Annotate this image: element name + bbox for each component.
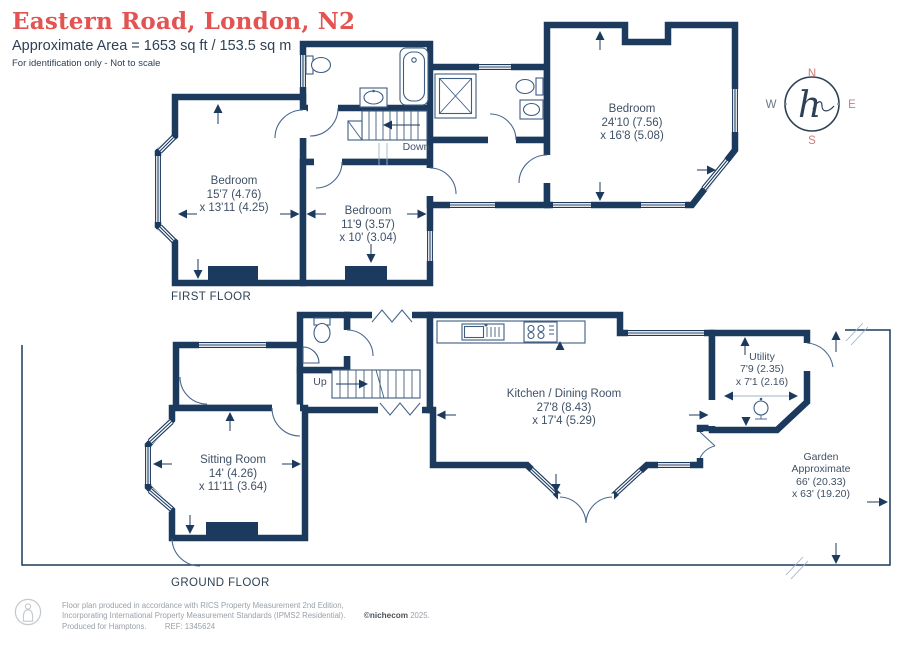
- toilet-icon: [306, 56, 331, 74]
- room-hall-ff: [430, 140, 547, 205]
- room-porch: [176, 345, 300, 408]
- ground-floor-label: GROUND FLOOR: [171, 577, 270, 589]
- ground-floor-plan: [146, 310, 833, 566]
- first-floor-label: FIRST FLOOR: [171, 291, 251, 303]
- stairs-down-label: Down: [403, 141, 430, 153]
- chimney-breast: [208, 266, 258, 283]
- room-label-sitting-room: Sitting Room 14' (4.26) x 11'11 (3.64): [199, 454, 267, 495]
- toilet-icon: [516, 78, 543, 95]
- window: [641, 203, 685, 208]
- reference-number: REF: 1345624: [165, 622, 215, 631]
- chimney-breast: [206, 522, 258, 538]
- page-title: Eastern Road, London, N2: [12, 8, 355, 35]
- compass-north: N: [808, 68, 816, 80]
- kitchen-counter: [437, 321, 585, 343]
- toilet-icon: [314, 318, 330, 343]
- first-floor-plan: [156, 25, 738, 283]
- compass-tick: [785, 103, 787, 105]
- french-doors: [558, 494, 614, 524]
- room-label-bedroom-mid: Bedroom 11'9 (3.57) x 10' (3.04): [339, 205, 396, 246]
- footer-line-2: Incorporating International Property Mea…: [62, 611, 430, 622]
- stairs-up-label: Up: [313, 376, 326, 388]
- compass: N S W E h: [766, 68, 857, 147]
- floorplan-page: N S W E h Eastern Road, London, N2 Appro…: [0, 0, 912, 645]
- hamptons-monogram: h: [798, 85, 821, 126]
- stairs: [332, 370, 420, 398]
- sink-icon: [360, 88, 387, 107]
- kitchen-sink-icon: [462, 324, 504, 341]
- hob-icon: [524, 322, 557, 342]
- room-label-kitchen-dining: Kitchen / Dining Room 27'8 (8.43) x 17'4…: [507, 388, 621, 429]
- compass-east: E: [848, 99, 856, 111]
- room-label-bedroom-main: Bedroom 24'10 (7.56) x 16'8 (5.08): [600, 103, 664, 144]
- door: [172, 539, 200, 566]
- room-label-bedroom-left: Bedroom 15'7 (4.76) x 13'11 (4.25): [199, 175, 268, 216]
- door: [697, 432, 716, 458]
- floorplan-drawing: N S W E h: [0, 0, 912, 645]
- disclaimer: For identification only - Not to scale: [12, 58, 160, 69]
- window: [199, 343, 266, 348]
- compass-south: S: [808, 135, 816, 147]
- window: [628, 331, 704, 336]
- window: [450, 203, 495, 208]
- window: [156, 156, 161, 222]
- boundary-break-mark: [786, 557, 808, 579]
- room-label-utility: Utility 7'9 (2.35) x 7'1 (2.16): [736, 351, 788, 388]
- window: [479, 65, 511, 70]
- approximate-area: Approximate Area = 1653 sq ft / 153.5 sq…: [12, 38, 291, 54]
- shower-icon: [435, 74, 476, 118]
- footer-line-3: Produced for Hamptons. REF: 1345624: [62, 622, 430, 632]
- window: [428, 231, 433, 261]
- window: [301, 55, 306, 87]
- footer-line-1: Floor plan produced in accordance with R…: [62, 601, 430, 611]
- window: [658, 463, 690, 468]
- compass-west: W: [766, 99, 777, 111]
- compass-tick: [837, 103, 839, 105]
- window: [146, 447, 151, 484]
- dimension-arrows: [832, 331, 889, 564]
- window: [733, 89, 738, 132]
- person-icon: [14, 598, 42, 626]
- bathtub-icon: [400, 48, 428, 105]
- nichecom-logo: ©nichecom: [364, 611, 408, 620]
- sink-icon: [520, 100, 543, 119]
- door: [709, 400, 716, 426]
- boundary-break-mark: [846, 323, 868, 345]
- garden-label: Garden Approximate 66' (20.33) x 63' (19…: [792, 451, 851, 501]
- window: [553, 203, 591, 208]
- chimney-breast: [345, 266, 387, 283]
- door: [804, 343, 834, 371]
- footer-disclaimer: Floor plan produced in accordance with R…: [62, 601, 430, 632]
